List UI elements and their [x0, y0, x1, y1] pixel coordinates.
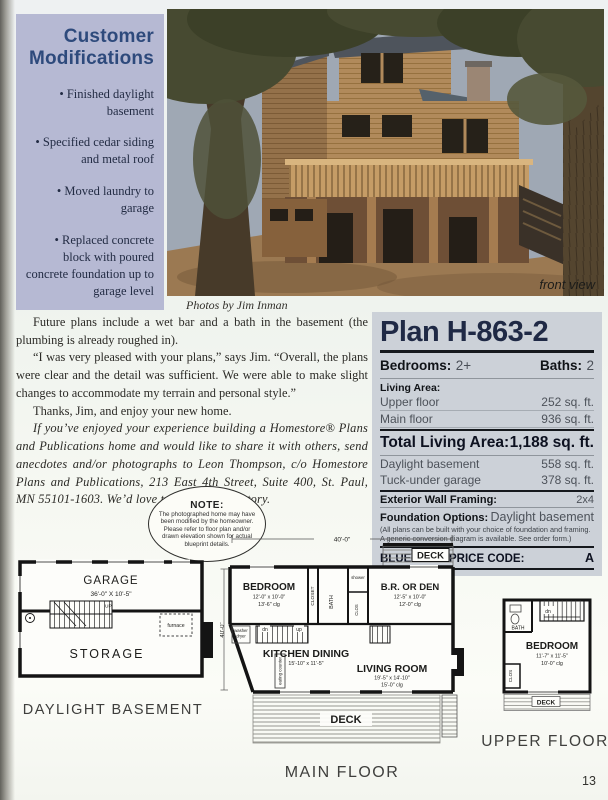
- customer-modifications-list: • Finished daylight basement • Specified…: [24, 86, 154, 300]
- framing-label: Exterior Wall Framing:: [380, 494, 497, 506]
- house-photo: front view: [167, 9, 604, 296]
- paragraph: “I was very pleased with your plans,” sa…: [16, 349, 368, 402]
- bedrooms-value: 2+: [456, 358, 471, 373]
- upper-plan-label: UPPER FLOOR: [478, 733, 608, 751]
- bedroom-label: BEDROOM: [243, 582, 295, 593]
- dryer-label: dryer: [236, 634, 246, 639]
- row-label: Daylight basement: [380, 457, 479, 471]
- closet-label: CLOSET: [310, 586, 316, 605]
- basement-plan-label: DAYLIGHT BASEMENT: [12, 702, 214, 718]
- main-deck-railing: [285, 159, 533, 197]
- furnace-label: furnace: [167, 623, 184, 629]
- kitchen-label: KITCHEN DINING: [263, 648, 349, 660]
- bedroom-dim: 11'-7" x 11'-5": [536, 654, 568, 660]
- list-item: • Finished daylight basement: [24, 86, 154, 120]
- washer-label: washer: [234, 628, 248, 633]
- bedroom-clg: 10'-0" clg: [541, 661, 563, 667]
- clos-label: CLOS: [354, 604, 359, 616]
- row-value: 558 sq. ft.: [541, 457, 594, 471]
- bath-label: BATH: [512, 626, 525, 632]
- list-item: • Specified cedar siding and metal roof: [24, 134, 154, 168]
- main-floor-plan: 40'-0" 40'-0" DECK: [220, 532, 464, 760]
- bedrooms-baths-row: Bedrooms: 2+ Baths: 2: [380, 353, 594, 379]
- living-label: LIVING ROOM: [357, 663, 428, 675]
- foundation-row: Foundation Options: Daylight basement: [380, 507, 594, 524]
- eating-counter-label: eating counter: [278, 657, 283, 685]
- row-value: 252 sq. ft.: [541, 395, 594, 409]
- total-value: 1,188 sq. ft.: [510, 434, 594, 452]
- main-plan-label: MAIN FLOOR: [220, 764, 464, 782]
- clos-label: CLOS: [508, 670, 513, 683]
- baths-label: Baths:: [540, 358, 582, 373]
- garage-dim: 36'-0" X 10'-5": [90, 591, 132, 598]
- bath-label: BATH: [329, 595, 335, 609]
- spec-row: Tuck-under garage 378 sq. ft.: [380, 472, 594, 488]
- storage-label: STORAGE: [70, 647, 145, 661]
- deck-label: DECK: [537, 700, 556, 707]
- upper-floor-plan: DECK BATH dn CLOS BEDROOM 11'-7" x 11'-5…: [488, 592, 604, 724]
- article: Future plans include a wet bar and a bat…: [16, 314, 368, 509]
- bedroom-clg: 13'-6" clg: [258, 602, 280, 608]
- front-view-label: front view: [539, 277, 596, 292]
- dim-left: 40'-0": [220, 622, 226, 637]
- list-item: • Moved laundry to garage: [24, 183, 154, 217]
- row-label: Tuck-under garage: [380, 473, 481, 487]
- bedroom-label: BEDROOM: [526, 641, 578, 652]
- customer-modifications-box: Customer Modifications • Finished daylig…: [16, 14, 164, 310]
- deck-top-label: DECK: [417, 551, 444, 562]
- dim-top: 40'-0": [334, 537, 351, 544]
- spec-row: Daylight basement 558 sq. ft.: [380, 456, 594, 472]
- row-value: 936 sq. ft.: [541, 412, 594, 426]
- brden-dim: 12'-5" x 10'-0": [394, 595, 427, 601]
- total-living-area-row: Total Living Area: 1,188 sq. ft.: [380, 429, 594, 456]
- total-label: Total Living Area:: [380, 434, 509, 452]
- living-dim: 19'-5" x 14'-10": [374, 676, 410, 682]
- row-value: 378 sq. ft.: [541, 473, 594, 487]
- deck-bottom-label: DECK: [330, 714, 361, 726]
- living-clg: 15'-0" clg: [381, 683, 403, 689]
- shower-label: shower: [351, 575, 365, 580]
- up-label: up: [296, 627, 302, 633]
- foundation-label: Foundation Options:: [380, 512, 488, 524]
- dn-label: dn: [545, 609, 551, 615]
- brden-label: B.R. OR DEN: [381, 582, 440, 593]
- customer-modifications-title: Customer Modifications: [24, 26, 154, 70]
- up-label: UP: [105, 604, 112, 610]
- basement-floor-plan: furnace UP GARAGE 36'-0" X 10'-5" STORAG…: [12, 554, 214, 696]
- framing-row: Exterior Wall Framing: 2x4: [380, 490, 594, 507]
- bedroom-dim: 12'-0" x 10'-0": [253, 595, 286, 601]
- note-title: NOTE:: [190, 500, 224, 511]
- spec-row: Main floor 936 sq. ft.: [380, 411, 594, 428]
- bedrooms-label: Bedrooms:: [380, 358, 451, 373]
- spec-row: Upper floor 252 sq. ft.: [380, 394, 594, 411]
- kitchen-dim: 15'-10" x 11'-5": [288, 661, 323, 667]
- paragraph: Thanks, Jim, and enjoy your new home.: [16, 403, 368, 421]
- dn-label: dn: [262, 627, 268, 633]
- garage-label: GARAGE: [83, 575, 138, 587]
- row-label: Upper floor: [380, 395, 439, 409]
- paragraph: Future plans include a wet bar and a bat…: [16, 314, 368, 349]
- framing-value: 2x4: [576, 494, 594, 506]
- list-item: • Replaced concrete block with poured co…: [24, 232, 154, 300]
- row-label: Main floor: [380, 412, 433, 426]
- brden-clg: 12'-0" clg: [399, 602, 421, 608]
- price-code-value: A: [585, 551, 594, 565]
- plan-title: Plan H-863-2: [380, 318, 594, 353]
- photo-caption: Photos by Jim Inman: [186, 298, 288, 313]
- page-number: 13: [582, 774, 596, 788]
- catalog-page: Customer Modifications • Finished daylig…: [0, 0, 608, 800]
- baths-value: 2: [586, 358, 594, 373]
- living-area-label: Living Area:: [380, 382, 594, 394]
- foundation-value: Daylight basement: [490, 510, 594, 524]
